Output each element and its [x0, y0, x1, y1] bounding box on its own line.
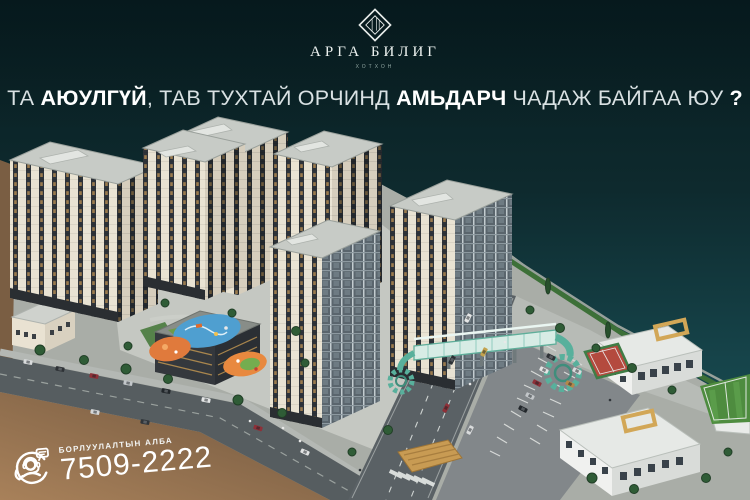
- apartment-tower: [10, 142, 158, 322]
- headline-segment-bold: АЮУЛГҮЙ: [40, 86, 146, 110]
- headline-segment: , ТАВ ТУХТАЙ ОРЧИНД: [147, 86, 396, 110]
- apartment-tower: [270, 220, 380, 428]
- headline-segment-bold: АМЬДАРЧ: [396, 86, 506, 110]
- diamond-monogram-icon: [357, 7, 393, 43]
- apartment-tower: [143, 130, 245, 300]
- masterplan-render: [0, 0, 750, 500]
- headline-segment: ЧАДАЖ БАЙГАА ЮУ: [506, 86, 729, 110]
- headline-segment: ТА: [7, 86, 40, 110]
- call-center-agent-icon: [9, 445, 55, 491]
- brand-name: АРГА БИЛИГ: [0, 44, 750, 61]
- brand-tagline: ХОТХОН: [0, 64, 750, 70]
- headline: ТА АЮУЛГҮЙ, ТАВ ТУХТАЙ ОРЧИНД АМЬДАРЧ ЧА…: [0, 87, 750, 111]
- headline-segment-bold: ?: [730, 86, 743, 110]
- poster: АРГА БИЛИГ ХОТХОН ТА АЮУЛГҮЙ, ТАВ ТУХТАЙ…: [0, 0, 750, 500]
- brand-block: АРГА БИЛИГ ХОТХОН: [0, 7, 750, 70]
